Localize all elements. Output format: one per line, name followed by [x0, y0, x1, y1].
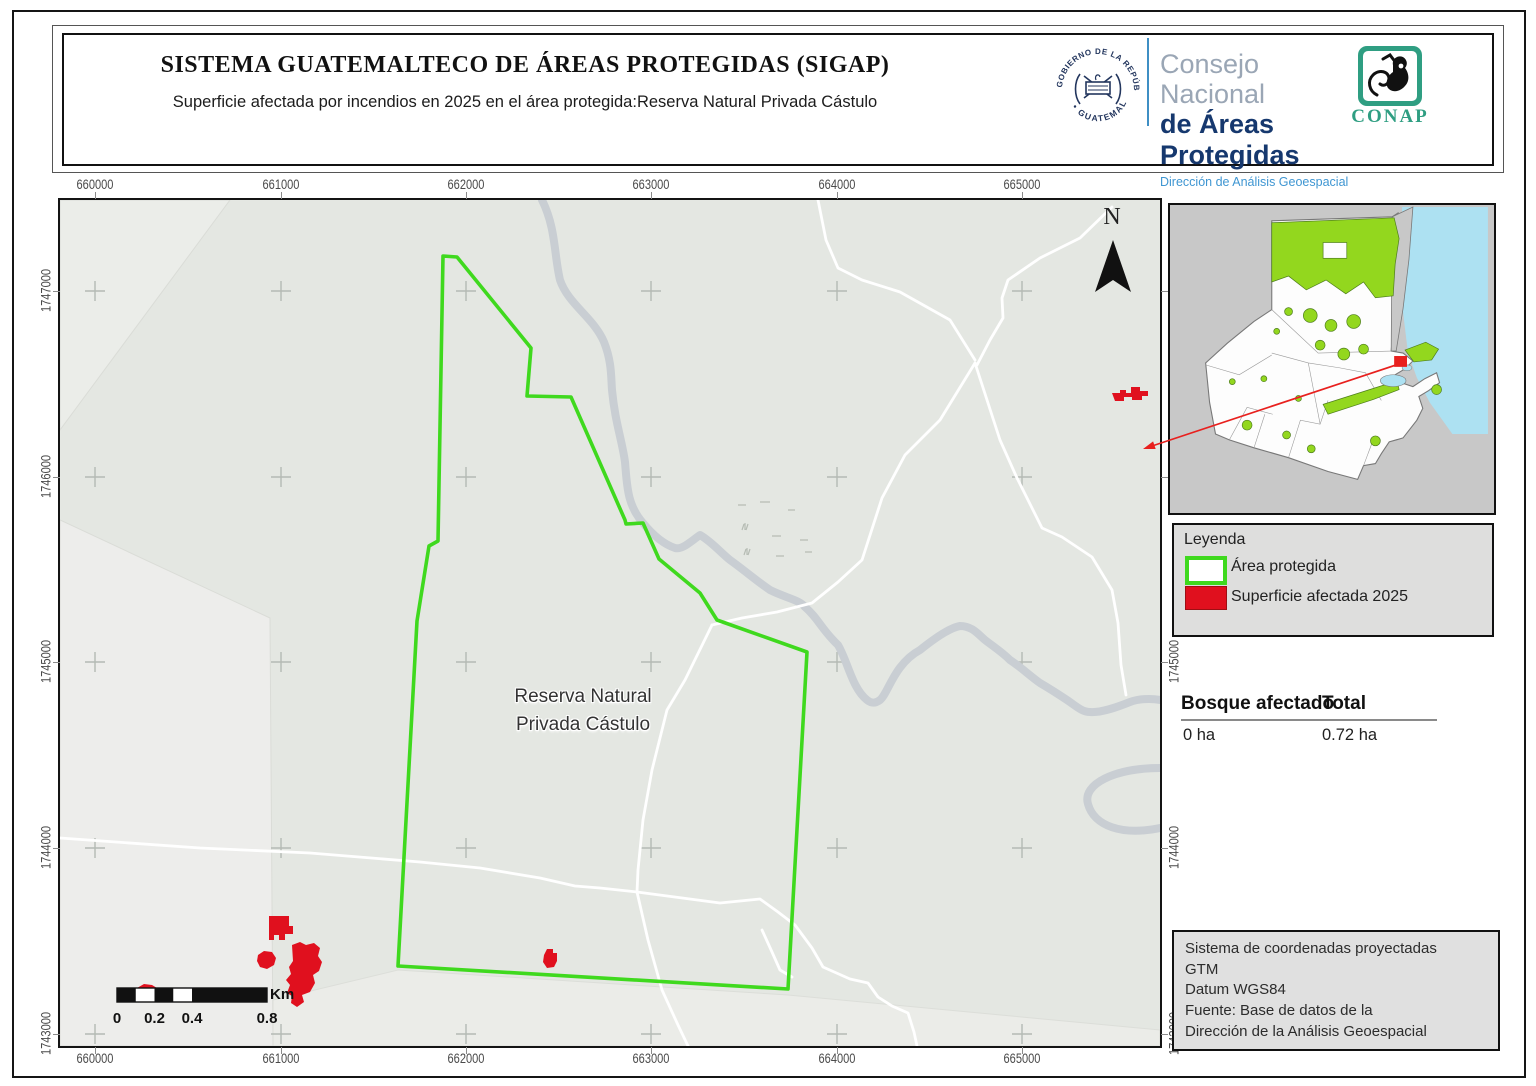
y-axis-label-left: 1747000: [39, 264, 54, 316]
y-tick-left: [53, 477, 60, 478]
guatemala-inset-map[interactable]: [1168, 203, 1496, 515]
y-tick-right: [1161, 477, 1168, 478]
x-axis-label-top: 660000: [69, 177, 121, 192]
x-axis-label-top: 662000: [440, 177, 492, 192]
x-axis-label-top: 665000: [996, 177, 1048, 192]
x-tick-bottom: [281, 1047, 282, 1054]
y-axis-label-left: 1744000: [39, 821, 54, 873]
x-tick-bottom: [1022, 1047, 1023, 1054]
stats-value-total: 0.72 ha: [1322, 726, 1377, 745]
areas-protegidas-text: de Áreas Protegidas: [1160, 109, 1360, 171]
x-tick-bottom: [95, 1047, 96, 1054]
y-tick-left: [53, 1034, 60, 1035]
conap-monkey-icon: [1363, 51, 1417, 101]
x-tick-top: [1022, 192, 1023, 199]
x-tick-bottom: [837, 1047, 838, 1054]
stats-header-bosque: Bosque afectado: [1181, 693, 1334, 714]
direccion-text: Dirección de Análisis Geoespacial: [1160, 175, 1360, 189]
main-map[interactable]: Reserva Natural Privada Cástulo N Km 00.…: [58, 198, 1162, 1048]
inset-lake-izabal: [1380, 375, 1406, 387]
protected-area-swatch: [1185, 556, 1227, 585]
stats-table: Bosque afectado Total: [1181, 693, 1441, 715]
map-canvas: [60, 200, 1160, 1046]
y-tick-left: [53, 848, 60, 849]
legend-title: Leyenda: [1184, 531, 1245, 549]
stats-header-total: Total: [1322, 693, 1366, 715]
x-tick-bottom: [651, 1047, 652, 1054]
x-axis-label-top: 664000: [811, 177, 863, 192]
x-axis-label-top: 663000: [625, 177, 677, 192]
coordinate-system-info-box: Sistema de coordenadas proyectadas GTM D…: [1172, 930, 1500, 1051]
x-tick-top: [466, 192, 467, 199]
conap-acronym-text: CONAP: [1346, 106, 1434, 128]
inset-map-canvas: [1170, 205, 1490, 509]
stats-value-bosque: 0 ha: [1183, 726, 1215, 745]
map-subtitle: Superficie afectada por incendios en 202…: [90, 93, 960, 112]
north-label: N: [1092, 204, 1132, 231]
legend: Leyenda Área protegida Superficie afecta…: [1172, 523, 1494, 637]
page-canvas: SISTEMA GUATEMALTECO DE ÁREAS PROTEGIDAS…: [0, 0, 1536, 1086]
consejo-nacional-text: Consejo Nacional: [1160, 50, 1360, 109]
y-axis-label-left: 1743000: [39, 1007, 54, 1059]
map-title: SISTEMA GUATEMALTECO DE ÁREAS PROTEGIDAS…: [90, 52, 960, 79]
y-tick-right: [1161, 848, 1168, 849]
y-tick-left: [53, 291, 60, 292]
x-tick-top: [95, 192, 96, 199]
y-axis-label-left: 1746000: [39, 450, 54, 502]
x-tick-bottom: [466, 1047, 467, 1054]
y-tick-left: [53, 662, 60, 663]
legend-item-fire-area: Superficie afectada 2025: [1231, 588, 1408, 606]
seal-emblem-icon: [1076, 74, 1121, 104]
x-tick-top: [281, 192, 282, 199]
conap-wordmark: Consejo Nacional de Áreas Protegidas Dir…: [1160, 50, 1360, 189]
y-axis-label-right: 1745000: [1167, 635, 1182, 687]
y-axis-label-right: 1744000: [1167, 821, 1182, 873]
legend-item-protected-area: Área protegida: [1231, 558, 1336, 576]
reserve-name-label: Reserva Natural Privada Cástulo: [443, 683, 723, 738]
y-axis-label-left: 1745000: [39, 635, 54, 687]
scale-number: 0.2: [135, 1010, 175, 1027]
x-tick-top: [837, 192, 838, 199]
fire-area-swatch: [1185, 586, 1227, 610]
y-tick-right: [1161, 291, 1168, 292]
scale-unit-label: Km: [270, 986, 294, 1003]
inset-location-marker: [1394, 356, 1407, 367]
scale-bar: [117, 988, 267, 1002]
coordinate-system-text: Sistema de coordenadas proyectadas GTM D…: [1185, 939, 1437, 1042]
header-logo-divider: [1147, 38, 1149, 126]
x-axis-label-top: 661000: [255, 177, 307, 192]
x-tick-top: [651, 192, 652, 199]
stats-divider: [1181, 719, 1437, 721]
scale-number: 0.8: [247, 1010, 287, 1027]
scale-number: 0.4: [172, 1010, 212, 1027]
y-tick-right: [1161, 662, 1168, 663]
y-tick-right: [1161, 1034, 1168, 1035]
scale-number: 0: [97, 1010, 137, 1027]
guatemala-government-seal-logo: GOBIERNO DE LA REPÚBLICA • GUATEMALA •: [1052, 42, 1144, 134]
